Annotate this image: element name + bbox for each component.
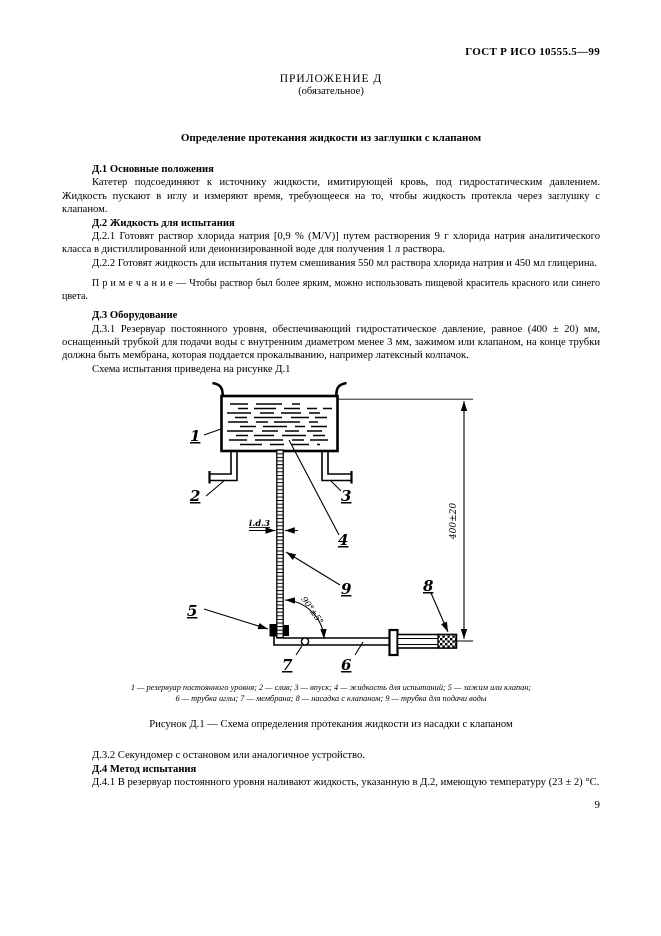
callout-3-inlet: 3 bbox=[341, 487, 351, 505]
section-d41-paragraph: Д.4.1 В резервуар постоянного уровня нал… bbox=[62, 776, 600, 789]
bore-dimension: i.d.3 bbox=[249, 519, 298, 531]
callout-1-reservoir: 1 bbox=[190, 427, 200, 445]
valve-nozzle bbox=[390, 630, 457, 655]
callout-8-valve-nozzle: 8 bbox=[423, 577, 434, 595]
callout-9-supply-tube: 9 bbox=[341, 580, 352, 598]
water-supply-tube bbox=[277, 450, 283, 638]
figure-d1: 400±20 i.d.3 90°±5° bbox=[150, 378, 480, 678]
height-dimension: 400±20 bbox=[338, 399, 473, 641]
appendix-status: (обязательное) bbox=[62, 86, 600, 97]
section-d32-paragraph: Д.3.2 Секундомер с остановом или аналоги… bbox=[62, 749, 600, 762]
section-d3-heading: Д.3 Оборудование bbox=[62, 309, 600, 322]
angle-dimension: 90°±5° bbox=[285, 595, 325, 639]
callout-4-test-liquid: 4 bbox=[338, 531, 348, 549]
inlet-pipe bbox=[322, 450, 352, 484]
callout-7-membrane: 7 bbox=[282, 656, 293, 674]
figure-legend: 1 — резервуар постоянного уровня; 2 — сл… bbox=[62, 682, 600, 704]
figure-caption: Рисунок Д.1 — Схема определения протекан… bbox=[62, 719, 600, 730]
document-page: ГОСТ Р ИСО 10555.5—99 ПРИЛОЖЕНИЕ Д (обяз… bbox=[0, 0, 661, 936]
callout-6-needle-tube: 6 bbox=[341, 656, 352, 674]
dimension-angle: 90°±5° bbox=[298, 595, 324, 627]
membrane bbox=[301, 638, 308, 645]
section-d31-paragraph: Д.3.1 Резервуар постоянного уровня, обес… bbox=[62, 323, 600, 363]
drain-pipe bbox=[210, 450, 238, 484]
section-d4-heading: Д.4 Метод испытания bbox=[62, 763, 600, 776]
callout-leaders bbox=[204, 429, 448, 655]
section-d21-paragraph: Д.2.1 Готовят раствор хлорида натрия [0,… bbox=[62, 230, 600, 257]
figure-legend-line-2: 6 — трубка иглы; 7 — мембрана; 8 — насад… bbox=[62, 693, 600, 704]
test-setup-diagram: 400±20 i.d.3 90°±5° bbox=[150, 378, 480, 678]
page-number: 9 bbox=[62, 799, 600, 811]
body-text: Д.1 Основные положения Катетер подсоедин… bbox=[62, 163, 600, 376]
callout-2-drain: 2 bbox=[189, 487, 200, 505]
appendix-label: ПРИЛОЖЕНИЕ Д bbox=[62, 73, 600, 85]
callout-5-clamp: 5 bbox=[187, 602, 197, 620]
section-d1-heading: Д.1 Основные положения bbox=[62, 163, 600, 176]
appendix-title: Определение протекания жидкости из заглу… bbox=[62, 132, 600, 144]
figure-legend-line-1: 1 — резервуар постоянного уровня; 2 — сл… bbox=[62, 682, 600, 693]
tail-text: Д.3.2 Секундомер с остановом или аналоги… bbox=[62, 749, 600, 789]
standard-number: ГОСТ Р ИСО 10555.5—99 bbox=[62, 46, 600, 58]
section-d1-paragraph: Катетер подсоединяют к источнику жидкост… bbox=[62, 176, 600, 216]
dimension-400-20: 400±20 bbox=[449, 503, 459, 540]
dimension-bore: i.d.3 bbox=[249, 519, 270, 529]
note-paragraph: П р и м е ч а н и е — Чтобы раствор был … bbox=[62, 277, 600, 303]
section-d2-heading: Д.2 Жидкость для испытания bbox=[62, 217, 600, 230]
section-d3-scheme-line: Схема испытания приведена на рисунке Д.1 bbox=[62, 363, 600, 376]
section-d22-paragraph: Д.2.2 Готовят жидкость для испытания пут… bbox=[62, 257, 600, 270]
